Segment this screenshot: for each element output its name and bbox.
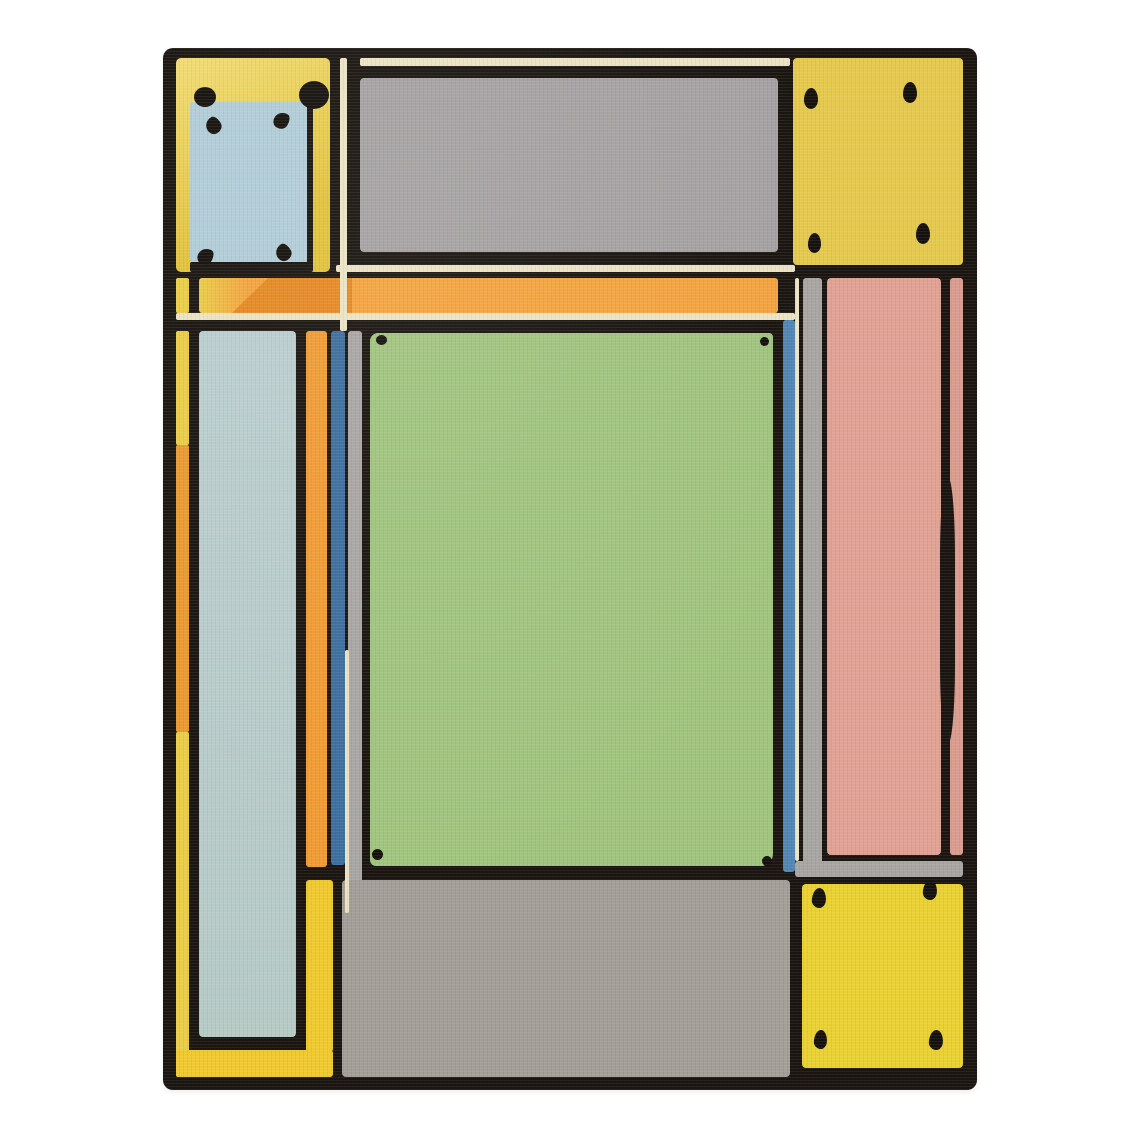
right-pink-column — [827, 278, 941, 855]
cream-line-vertical-right — [795, 278, 799, 861]
cream-line-under-gray-panel — [336, 265, 795, 272]
rug — [163, 48, 977, 1090]
left-edge-strip-yellow — [176, 331, 189, 445]
inset-right-outline — [307, 102, 313, 268]
large-dot-mark — [194, 87, 216, 107]
cream-line-vertical-left — [340, 58, 347, 331]
gray-stripe-right — [803, 278, 822, 877]
gray-band-above-yellow — [795, 861, 963, 877]
orange-pillar — [306, 331, 327, 867]
oval-dot-mark — [903, 82, 917, 103]
steel-blue-stripe-right — [783, 320, 795, 872]
steel-blue-stripe-left — [331, 331, 345, 865]
left-pale-blue-column — [199, 331, 296, 1037]
green-corner-dot — [372, 849, 383, 860]
cream-line-under-band — [176, 313, 795, 320]
center-green-field — [370, 333, 773, 866]
left-edge-strip-yellow — [176, 732, 189, 1077]
top-gray-panel — [360, 78, 778, 252]
left-edge-strip-orange — [176, 445, 189, 732]
green-corner-dot — [762, 856, 772, 866]
oval-dot-mark — [808, 233, 821, 253]
bottom-left-frame-bottom-bar — [176, 1050, 333, 1077]
green-corner-dot — [376, 335, 387, 345]
cream-line-lower-left — [345, 650, 349, 913]
gray-stripe-left — [348, 331, 362, 915]
left-edge-strip-yellow — [176, 278, 189, 313]
green-corner-dot — [760, 337, 769, 346]
oval-dot-mark — [804, 88, 818, 109]
top-right-yellow-panel — [793, 58, 963, 265]
bottom-gray-band — [342, 880, 790, 1077]
large-dot-mark — [299, 81, 329, 109]
product-photo-canvas — [0, 0, 1140, 1140]
oval-dot-mark — [916, 223, 930, 244]
bottom-left-frame-right-bar — [306, 880, 333, 1052]
wobbly-outline-bulge — [940, 478, 955, 743]
cream-line-top — [360, 58, 790, 66]
